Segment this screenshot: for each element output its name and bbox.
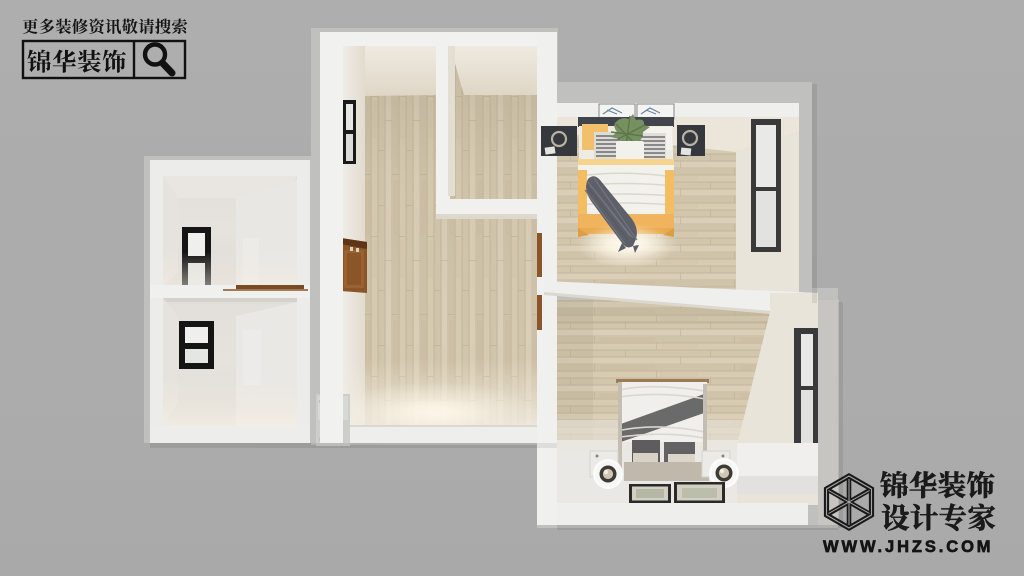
svg-text:WWW.JHZS.COM: WWW.JHZS.COM [823, 538, 993, 556]
